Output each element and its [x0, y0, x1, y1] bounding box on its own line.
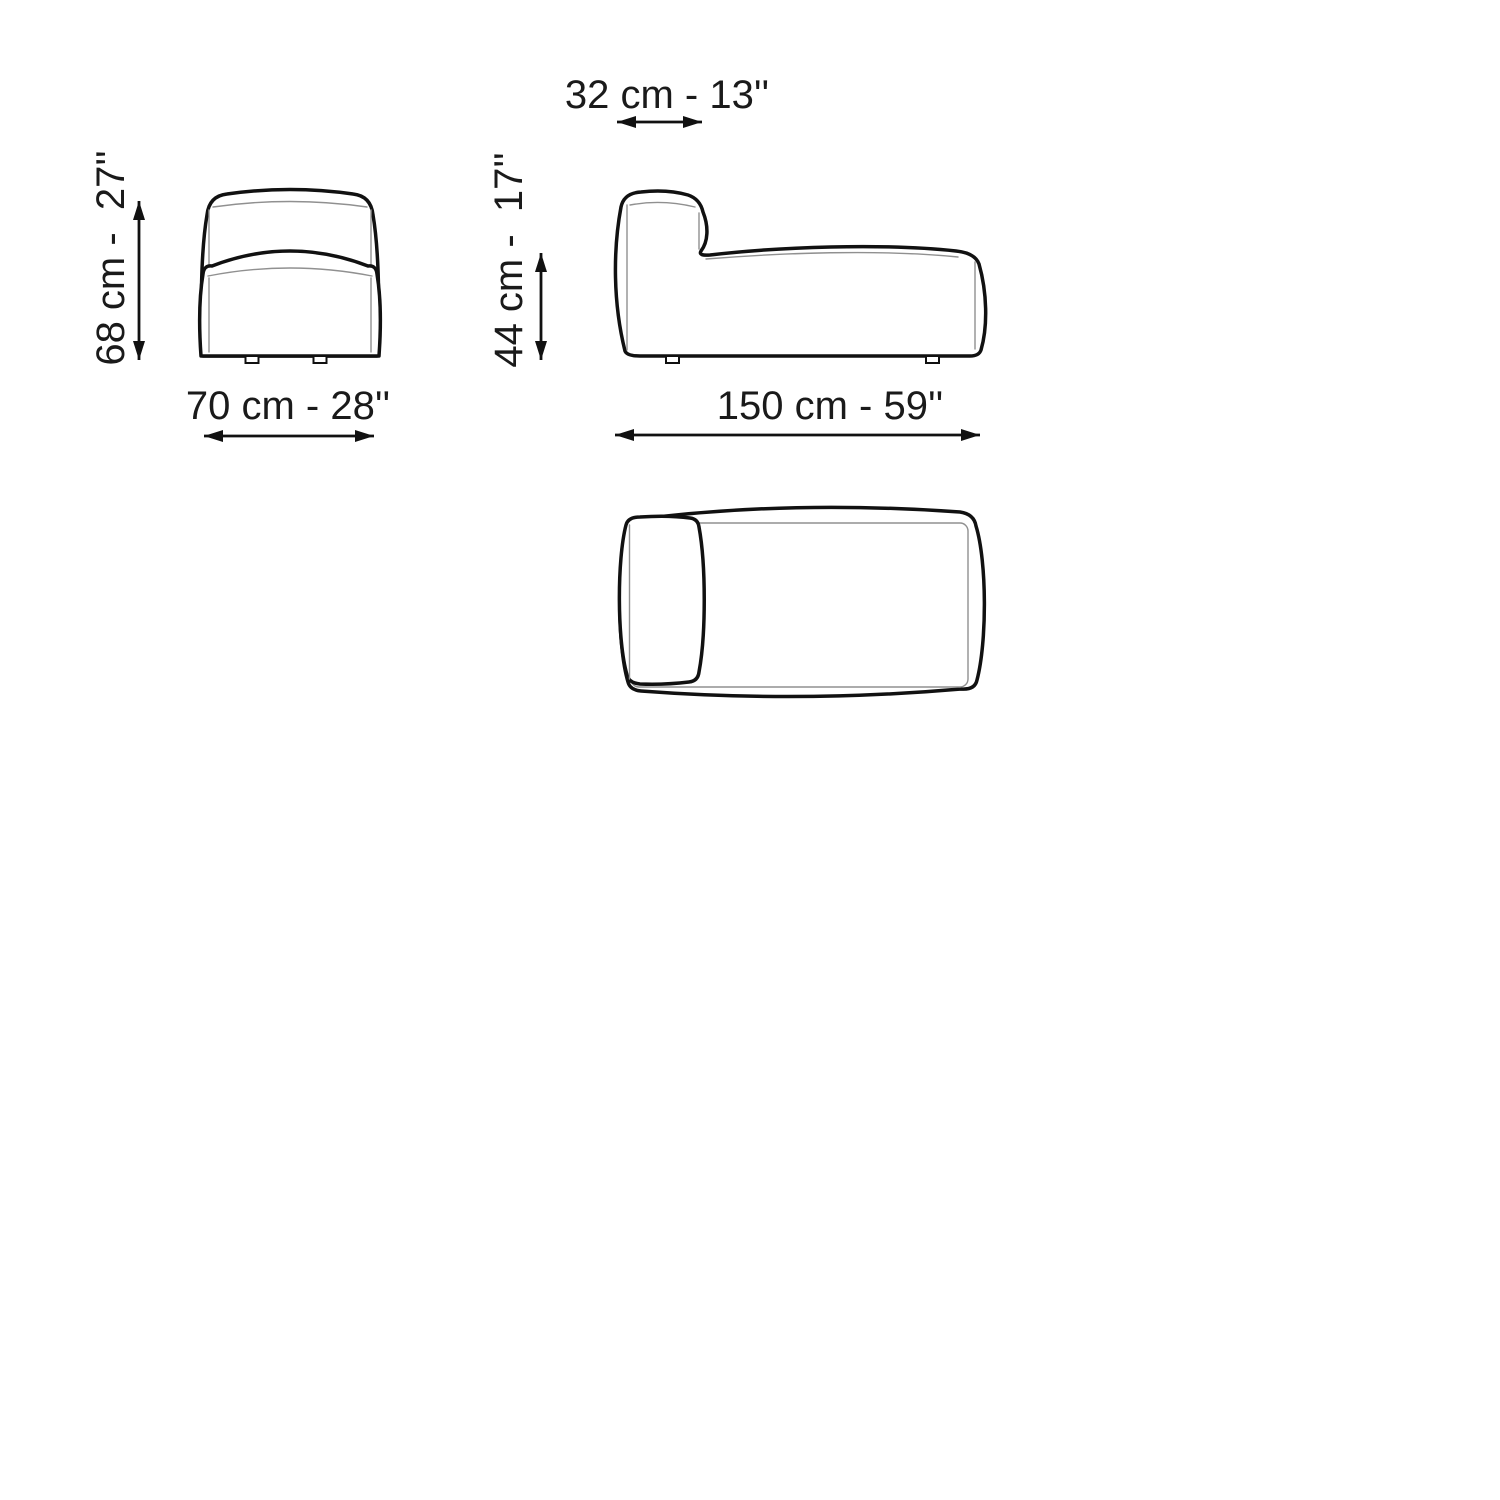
front-seat-outline	[200, 251, 381, 356]
front-view-drawing	[200, 190, 381, 364]
side-seat-height-label: 44 cm - 17''	[489, 152, 529, 367]
diagram-canvas	[0, 0, 1500, 1500]
side-outline	[615, 191, 985, 356]
front-foot-right	[314, 356, 327, 363]
side-foot-right	[926, 356, 939, 363]
side-view-drawing	[615, 191, 985, 363]
side-foot-left	[666, 356, 679, 363]
top-headrest-outline	[619, 516, 704, 684]
front-foot-left	[246, 356, 259, 363]
side-length-label: 150 cm - 59''	[717, 386, 943, 426]
front-height-label: 68 cm - 27''	[91, 150, 131, 365]
furniture-dimension-diagram: 68 cm - 27'' 70 cm - 28'' 32 cm - 13'' 4…	[0, 0, 1500, 1500]
side-backrest-depth-label: 32 cm - 13''	[565, 75, 769, 115]
front-width-label: 70 cm - 28''	[186, 386, 390, 426]
top-view-drawing	[619, 507, 984, 696]
